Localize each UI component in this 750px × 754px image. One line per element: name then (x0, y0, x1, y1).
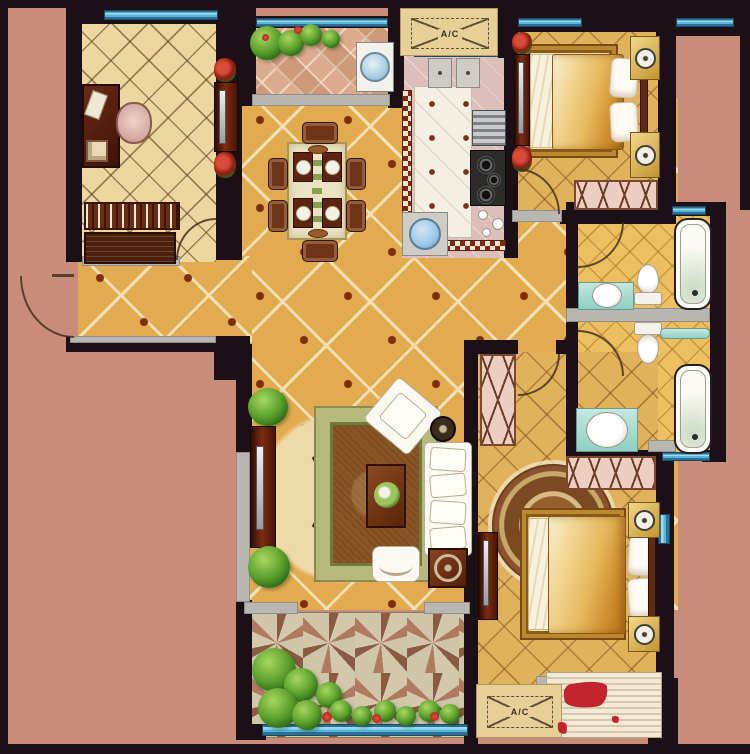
lamp-icon (635, 48, 656, 69)
bathroom1-sink-bowl (592, 283, 622, 308)
study-stool-cube (86, 140, 108, 162)
placemat (322, 198, 342, 228)
plate (296, 206, 311, 221)
sofa-cushion (429, 500, 467, 525)
lamp-icon (634, 510, 655, 531)
ac-label-bottom: A/C (508, 707, 533, 717)
cooktop-stove (470, 150, 506, 206)
living-window-sill (236, 452, 250, 602)
south-balcony-plant (330, 700, 352, 722)
bedroom1-tv-screen (518, 62, 524, 134)
side-table-wheel (434, 554, 462, 582)
bedroom2-right-sill (648, 440, 676, 452)
prep-sink-basin (409, 218, 441, 250)
desk-chair (116, 102, 152, 144)
towel-rail (660, 328, 710, 339)
bedroom2-top-wall-left (464, 340, 518, 354)
study-tv-screen (219, 90, 226, 144)
study-plant-upper (214, 58, 236, 82)
side-table (428, 548, 468, 588)
tub-drain (692, 434, 698, 440)
balcony-bottom-sill-left (244, 602, 298, 614)
balcony-flower (294, 26, 302, 34)
south-balcony-plant (440, 704, 460, 724)
burner (487, 173, 501, 187)
washer-drum (360, 52, 390, 82)
top-right-window (676, 18, 734, 27)
bathrooms-divider-wall (566, 308, 710, 322)
serving-dish (308, 229, 328, 238)
entry-door-leaf (52, 274, 74, 277)
bedroom2-nightstand-bottom (628, 616, 660, 652)
sink-drain-dot (438, 71, 442, 75)
dining-chair-top (302, 122, 338, 144)
placemat (322, 152, 342, 182)
armchair-cushion (378, 391, 427, 440)
bedroom1-plant-upper (512, 32, 532, 54)
south-balcony-flower (372, 714, 381, 723)
bedroom2-top-wall-right (556, 340, 570, 354)
placemat (293, 198, 313, 228)
living-plant-upper (248, 388, 288, 426)
south-balcony-plant (352, 706, 372, 726)
south-balcony-flower (322, 712, 332, 722)
study-left-wall (66, 8, 82, 262)
lamp-icon (634, 624, 655, 645)
kitchen-bowl-1 (478, 210, 488, 220)
bedroom1-nightstand-bottom (630, 132, 660, 178)
bedroom2-duvet (548, 516, 626, 634)
balcony-top-window (256, 18, 388, 27)
bedroom2-nightstand-top (628, 502, 660, 538)
plate (296, 160, 311, 175)
living-tv-screen (256, 446, 264, 530)
south-balcony-flower (430, 712, 439, 721)
ottoman-stool (372, 546, 420, 582)
range-hood (472, 110, 506, 146)
bathroom2-bathtub (674, 364, 712, 454)
ac-unit-symbol-bottom: A/C (487, 696, 553, 728)
south-balcony-plant (396, 706, 416, 726)
bathroom1-window (672, 206, 706, 215)
red-watermark-fragment (612, 716, 620, 724)
dining-chair-right-2 (346, 200, 366, 232)
study-window (104, 10, 218, 20)
balcony-flower (262, 34, 269, 41)
burner (477, 186, 495, 204)
bathroom1-toilet-tank (634, 292, 662, 305)
bedroom2-wardrobe-wide (566, 456, 656, 490)
bedroom1-wardrobe (574, 180, 658, 210)
study-bookshelf (84, 202, 180, 230)
bathroom1-bathtub (674, 218, 712, 310)
living-left-wall-lower (236, 600, 252, 740)
tub-drain (692, 290, 698, 296)
bedroom2-tv-screen (483, 540, 489, 606)
kitchen-bowl-2 (492, 218, 504, 230)
kitchen-sink-left (428, 58, 452, 88)
bathroom1-toilet-bowl (637, 264, 659, 294)
dining-chair-left-1 (268, 158, 288, 190)
kitchen-bowl-3 (482, 228, 491, 237)
bedroom1-window (518, 18, 582, 27)
frame-top-wall (0, 0, 750, 8)
floor-plan: A/C A/C (0, 0, 750, 754)
south-balcony-plant (258, 688, 298, 728)
lamp-icon (635, 145, 656, 166)
study-plant-lower (214, 152, 236, 178)
washing-machine (356, 42, 394, 92)
dining-chair-bottom (302, 240, 338, 262)
burner (477, 156, 495, 174)
ac-platform-bottom: A/C (476, 684, 562, 738)
dining-chair-left-2 (268, 200, 288, 232)
south-balcony-plant (292, 700, 322, 730)
sink-drain-dot (466, 71, 470, 75)
coffee-table-bouquet (374, 482, 400, 508)
bathrooms-right-wall (710, 202, 726, 462)
entry-corner-wall (214, 336, 250, 380)
stool-curve-line (379, 555, 413, 576)
sofa (424, 442, 472, 556)
frame-left-wall (0, 0, 8, 744)
bedroom1-right-wall (658, 8, 676, 214)
ac-platform-top: A/C (400, 8, 498, 56)
bedroom1-nightstand-top (630, 36, 660, 80)
entry-door-swing (20, 276, 74, 338)
balcony-plant (300, 24, 322, 46)
balcony-bottom-window (262, 724, 468, 736)
dining-chair-right-1 (346, 158, 366, 190)
dining-table-runner (312, 146, 322, 236)
balcony-bottom-sill-right (424, 602, 470, 614)
entry-sill (70, 336, 216, 343)
plate (325, 160, 340, 175)
balcony-plant (322, 30, 340, 48)
ac-label-top: A/C (438, 29, 463, 39)
serving-dish (308, 145, 328, 154)
bedroom2-wardrobe-tall (480, 354, 516, 446)
ac-unit-symbol-top: A/C (411, 18, 489, 49)
sofa-cushion (429, 473, 467, 499)
side-lamp-table (430, 416, 456, 442)
frame-bottom-wall (0, 744, 750, 754)
entry-hall-floor (78, 256, 252, 342)
plate (325, 206, 340, 221)
balcony-top-sill (252, 94, 390, 106)
study-sideboard (84, 232, 176, 264)
kitchen-sink-right (456, 58, 480, 88)
study-tv-cabinet (214, 82, 238, 152)
living-plant-lower (248, 546, 290, 588)
sofa-cushion (429, 447, 467, 472)
bathroom2-sink-bowl (586, 412, 628, 448)
placemat (293, 152, 313, 182)
